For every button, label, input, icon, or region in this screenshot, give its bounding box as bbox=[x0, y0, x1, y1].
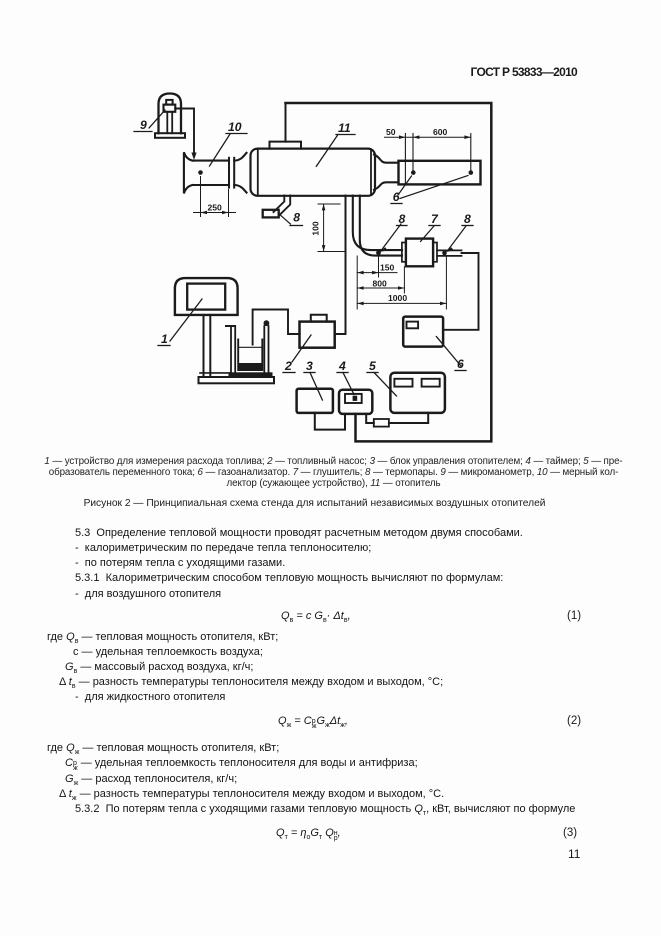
svg-text:800: 800 bbox=[373, 279, 388, 289]
svg-text:100: 100 bbox=[311, 221, 321, 236]
svg-text:1: 1 bbox=[161, 332, 168, 346]
svg-text:9: 9 bbox=[140, 118, 147, 132]
svg-text:6: 6 bbox=[393, 190, 400, 204]
svg-text:11: 11 bbox=[338, 121, 351, 135]
svg-text:10: 10 bbox=[228, 120, 242, 134]
svg-text:2: 2 bbox=[284, 359, 292, 373]
svg-text:50: 50 bbox=[386, 127, 396, 137]
svg-text:600: 600 bbox=[433, 127, 448, 137]
svg-text:6: 6 bbox=[457, 357, 464, 371]
svg-text:5: 5 bbox=[369, 359, 376, 373]
svg-text:250: 250 bbox=[208, 203, 223, 213]
svg-text:7: 7 bbox=[431, 212, 439, 226]
svg-text:8: 8 bbox=[293, 211, 300, 225]
svg-text:150: 150 bbox=[380, 263, 395, 273]
svg-text:3: 3 bbox=[306, 359, 313, 373]
svg-text:8: 8 bbox=[464, 212, 471, 226]
svg-text:8: 8 bbox=[399, 212, 406, 226]
svg-text:4: 4 bbox=[338, 359, 346, 373]
svg-text:1000: 1000 bbox=[388, 293, 407, 303]
